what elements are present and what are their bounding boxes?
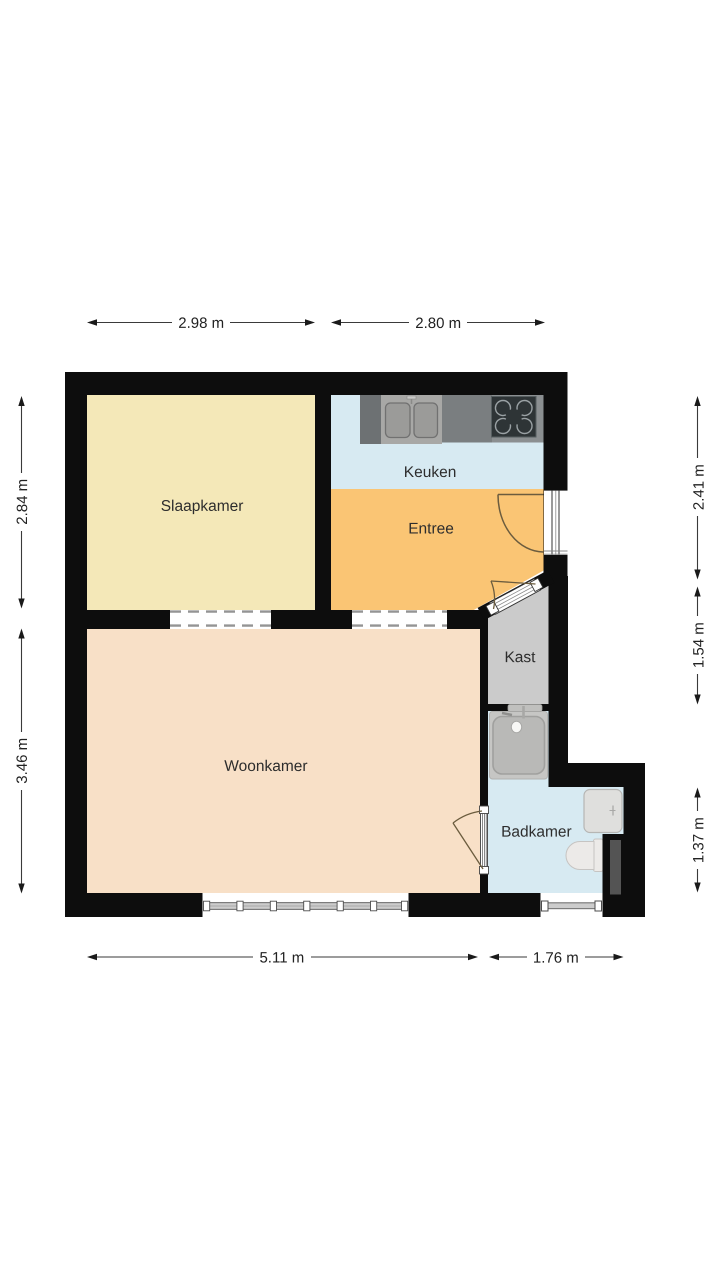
- svg-text:1.54 m: 1.54 m: [690, 622, 707, 668]
- svg-text:Badkamer: Badkamer: [501, 824, 572, 841]
- svg-text:5.11 m: 5.11 m: [259, 949, 304, 966]
- svg-text:Keuken: Keuken: [404, 464, 457, 481]
- svg-text:2.98 m: 2.98 m: [178, 315, 224, 332]
- svg-text:3.46 m: 3.46 m: [14, 738, 31, 784]
- svg-text:1.37 m: 1.37 m: [690, 817, 707, 863]
- svg-text:2.84 m: 2.84 m: [14, 479, 31, 525]
- svg-text:Slaapkamer: Slaapkamer: [161, 498, 244, 515]
- svg-text:Entree: Entree: [408, 521, 454, 538]
- svg-text:1.76 m: 1.76 m: [533, 950, 579, 967]
- svg-text:Woonkamer: Woonkamer: [224, 758, 307, 775]
- svg-text:2.80 m: 2.80 m: [415, 315, 461, 332]
- svg-text:Kast: Kast: [504, 649, 536, 666]
- svg-text:2.41 m: 2.41 m: [691, 464, 708, 510]
